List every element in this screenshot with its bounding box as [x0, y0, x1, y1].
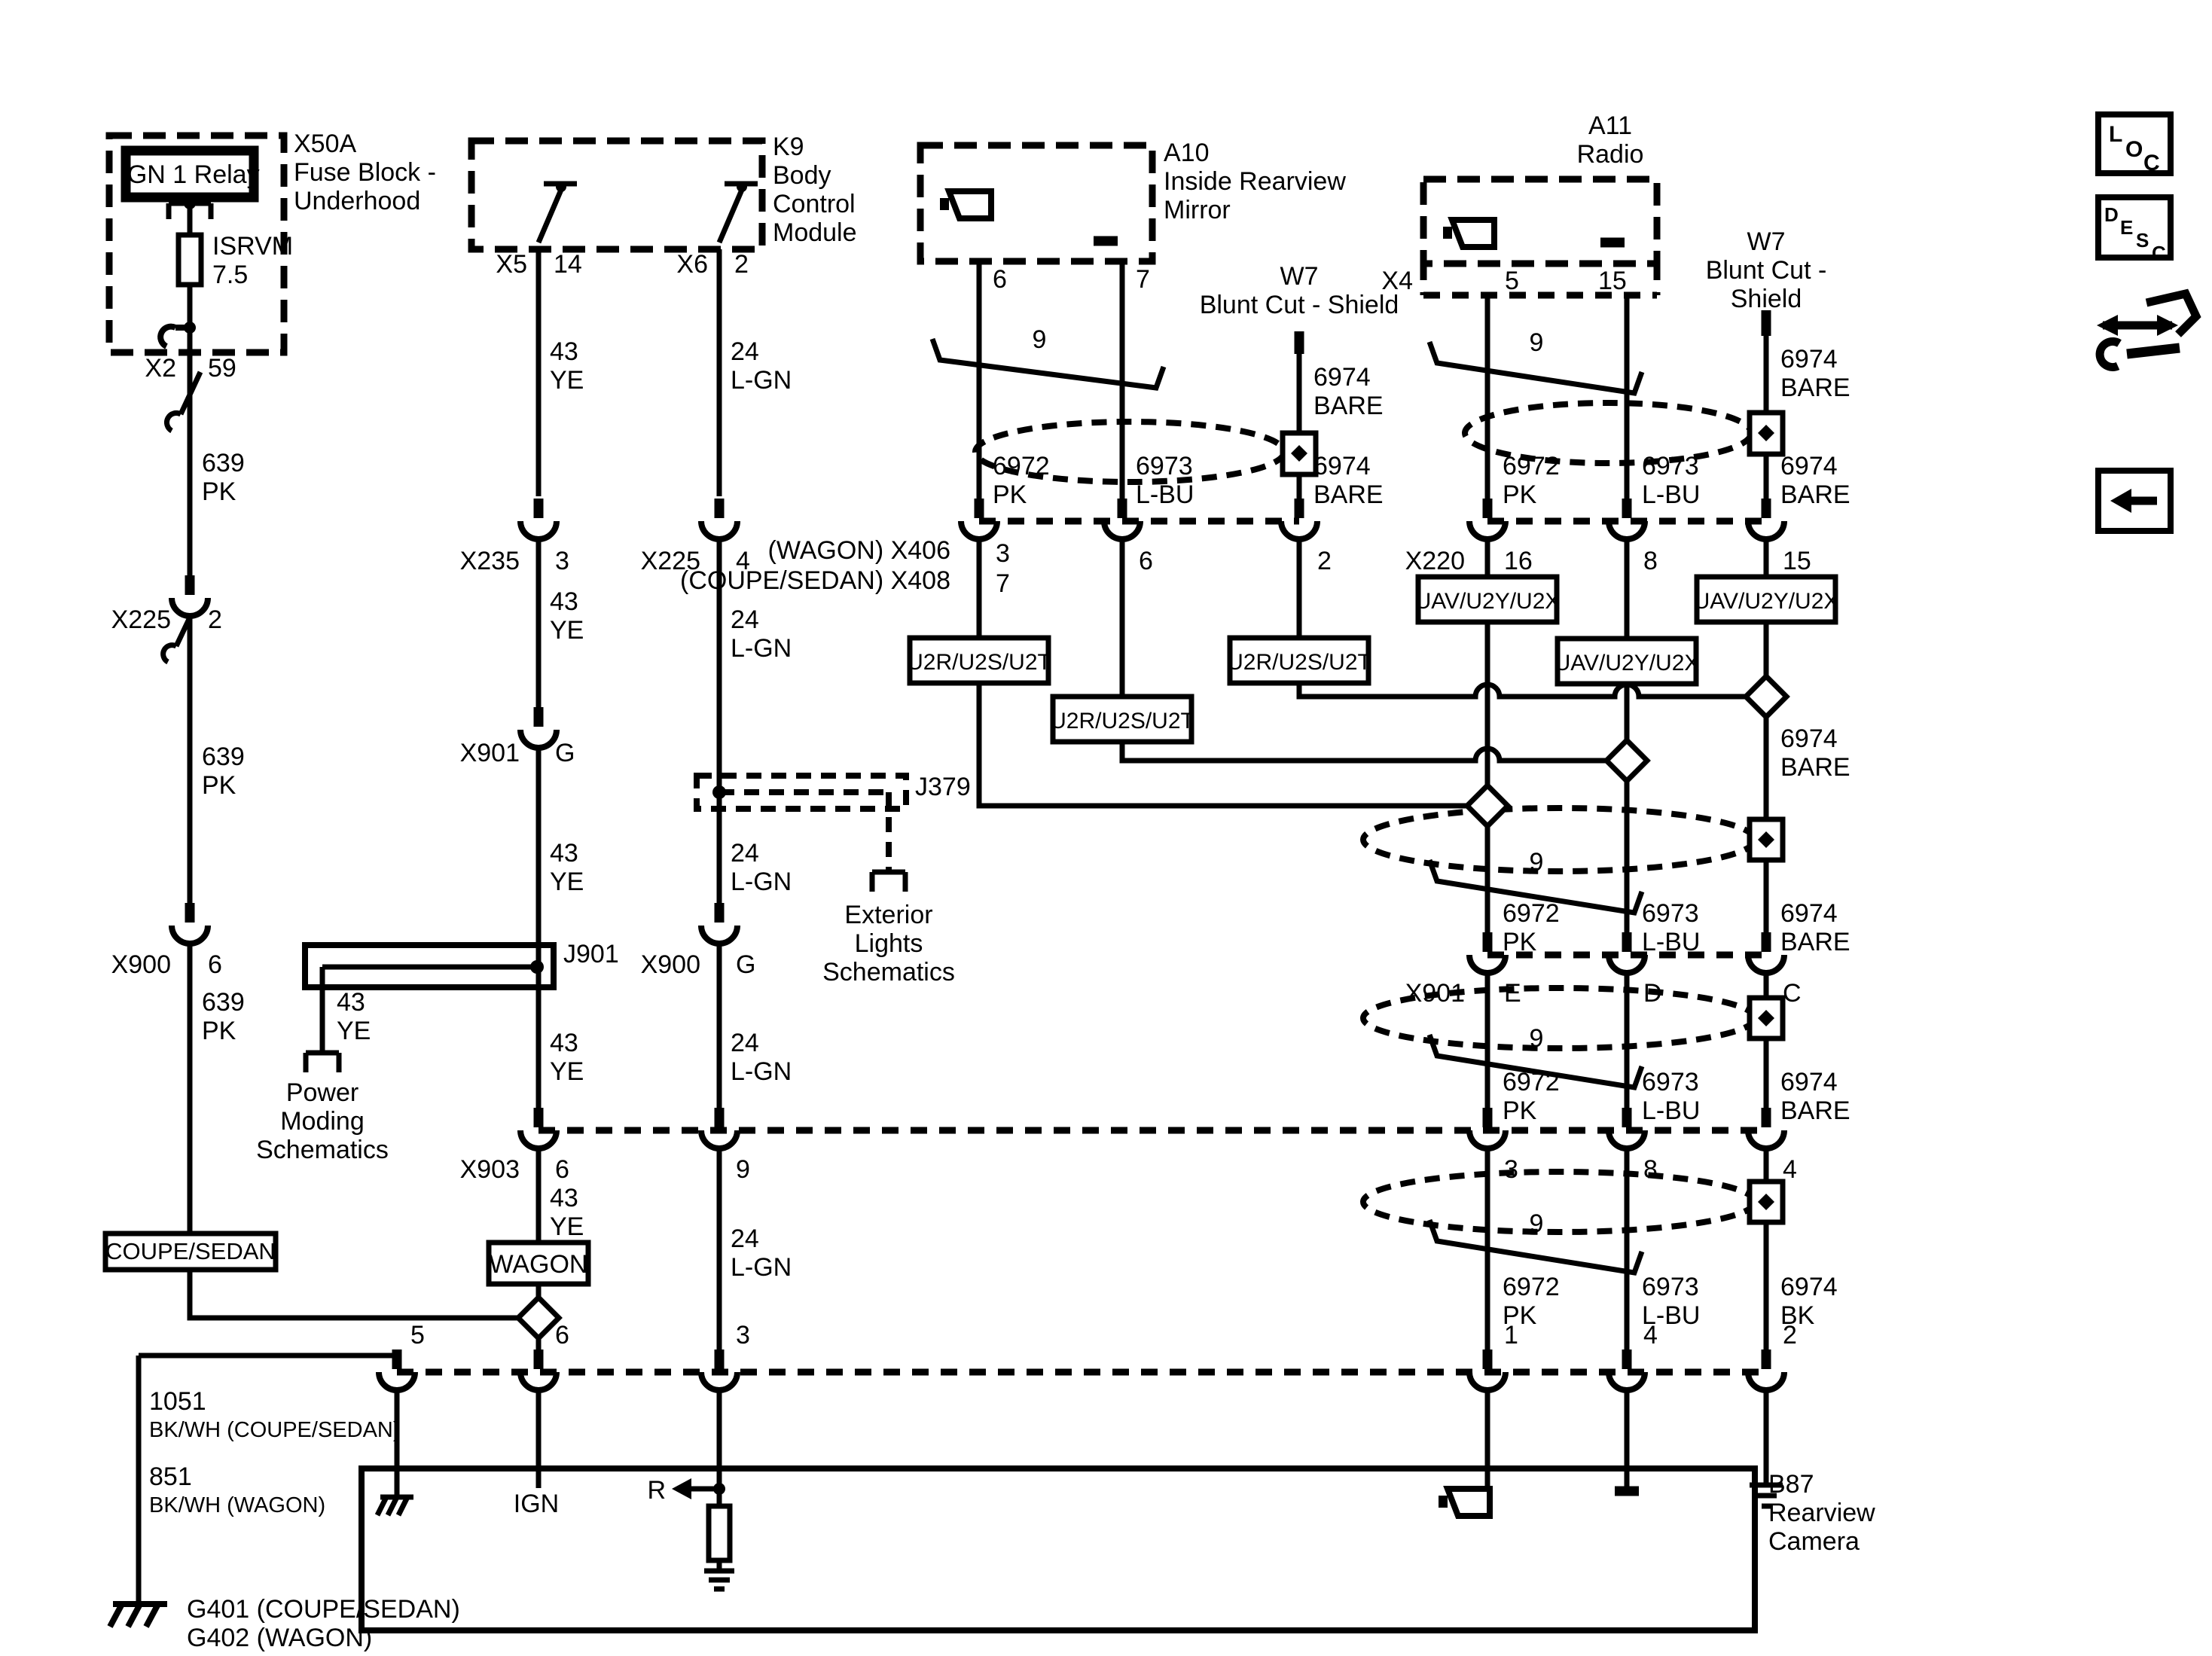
x6-pin: 2	[734, 250, 749, 279]
wire-label: 43	[550, 1184, 578, 1212]
wire-label: 6973	[1642, 1068, 1699, 1096]
camera-box	[362, 1468, 1783, 1630]
wire-label: BARE	[1313, 480, 1384, 509]
x903-pin-3: 3	[1504, 1155, 1518, 1184]
loc-letter-l: L	[2109, 122, 2122, 147]
x901-pin-c: C	[1783, 979, 1802, 1008]
wire-label: 43	[550, 1029, 578, 1057]
x900c-label: X900	[641, 950, 700, 979]
x903-pin-9: 9	[736, 1155, 750, 1184]
twist-4: 9	[1530, 1024, 1544, 1053]
wire-label: 6974	[1780, 1273, 1838, 1301]
x235-label: X235	[460, 547, 520, 575]
wire-label: YE	[550, 1057, 584, 1086]
k9-name-2: Control	[773, 190, 856, 218]
side-toolbar: L O C D E S C	[2097, 114, 2196, 531]
wire-label: 6974	[1780, 452, 1838, 480]
k9-box	[471, 141, 762, 249]
a10-id: A10	[1164, 139, 1210, 167]
desc-letter-d: D	[2104, 203, 2119, 226]
chassis-ground	[110, 1604, 167, 1627]
w7b-wire-color: BARE	[1780, 374, 1850, 402]
wire-label: 6972	[1503, 899, 1560, 928]
wire-label: 6973	[1642, 452, 1699, 480]
desc-letter-s: S	[2136, 229, 2149, 252]
b87-name-2: Camera	[1768, 1527, 1860, 1556]
camera-icon-b87	[1448, 1489, 1490, 1516]
x901b-label: X901	[460, 739, 520, 767]
x408-pin: 7	[996, 569, 1010, 598]
wire-label: 6973	[1642, 1273, 1699, 1301]
coupe-sedan-label: COUPE/SEDAN	[105, 1238, 276, 1264]
wire-label: YE	[550, 616, 584, 645]
wire-label: 43	[550, 337, 578, 366]
wire-851-color: BK/WH (WAGON)	[149, 1493, 325, 1517]
cb-hook-icon	[160, 327, 190, 346]
j379-label: J379	[915, 773, 971, 801]
bcm-switch-icons	[539, 181, 758, 242]
fuse-rating: 7.5	[212, 261, 248, 289]
b87-ign-label: IGN	[514, 1490, 559, 1518]
wire-label: BARE	[1780, 1096, 1850, 1125]
wire-label: L-BU	[1642, 480, 1700, 509]
exterior-lights-3: Schematics	[822, 958, 955, 987]
w7b-name-2: Shield	[1731, 285, 1802, 313]
x406-label: (WAGON) X406	[768, 536, 950, 565]
j901-label: J901	[563, 940, 619, 968]
a11-pin-15: 15	[1598, 267, 1627, 295]
w7a-wire-num: 6974	[1313, 363, 1371, 392]
mirror-radio-icons	[940, 191, 1625, 247]
w7b-id: W7	[1747, 227, 1786, 256]
wire-label: 24	[731, 605, 759, 634]
camera-icon-a10	[949, 191, 991, 218]
x2-label: X2	[145, 354, 176, 383]
x901-label: X901	[1405, 979, 1465, 1008]
x903-pin-6: 6	[555, 1155, 569, 1184]
a10-pin-7: 7	[1136, 265, 1150, 294]
x901-pin-e: E	[1504, 979, 1521, 1008]
wire-label: PK	[202, 477, 236, 506]
wire-label: 6972	[993, 452, 1050, 480]
cam-pin-6: 6	[555, 1321, 569, 1350]
back-button[interactable]	[2098, 471, 2171, 531]
wire-1051-color: BK/WH (COUPE/SEDAN)	[149, 1418, 401, 1442]
wire-label: YE	[550, 366, 584, 395]
wire-label: 6972	[1503, 452, 1560, 480]
loc-letter-c: C	[2143, 151, 2160, 175]
camera-icon-a11	[1452, 220, 1494, 247]
u2r-label: U2R/U2S/U2T	[1227, 650, 1371, 675]
inline-boxes	[105, 577, 1835, 1284]
exterior-lights-1: Exterior	[844, 901, 932, 929]
g402-label: G402 (WAGON)	[187, 1624, 372, 1652]
w7b-name-1: Blunt Cut -	[1706, 256, 1827, 285]
x900c-pin: G	[736, 950, 755, 979]
x235-pin: 3	[555, 547, 569, 575]
b87-id: B87	[1768, 1470, 1814, 1499]
relay-label: IGN 1 Relay	[120, 160, 259, 189]
cam-pin-1: 1	[1504, 1321, 1518, 1350]
b87-name-1: Rearview	[1768, 1499, 1875, 1527]
wire-label: 6974	[1780, 724, 1838, 753]
wire-label: YE	[337, 1017, 371, 1045]
wire-label: L-BU	[1642, 1096, 1700, 1125]
a10-pin-6: 6	[993, 265, 1007, 294]
desc-letter-c: C	[2152, 242, 2166, 264]
a11-name: Radio	[1577, 140, 1644, 169]
wire-label: PK	[1503, 1096, 1537, 1125]
reverse-arrow-icon	[672, 1478, 691, 1499]
x50a-name-2: Underhood	[294, 187, 420, 215]
x406-pin: 3	[996, 539, 1010, 568]
schematic-canvas: L O C D E S C X50A Fuse Block - Underhoo…	[0, 0, 2212, 1656]
x408-label: (COUPE/SEDAN) X408	[680, 566, 950, 595]
x220-label: X220	[1405, 547, 1465, 575]
wire-label: PK	[993, 480, 1027, 509]
wire-label: 6974	[1780, 1068, 1838, 1096]
x903-pin-8: 8	[1643, 1155, 1658, 1184]
wire-label: 639	[202, 743, 245, 771]
twist-1: 9	[1033, 325, 1047, 354]
wiring-diagram-page: L O C D E S C X50A Fuse Block - Underhoo…	[0, 0, 2212, 1656]
cam-pin-4: 4	[1643, 1321, 1658, 1350]
x220-pin-8: 8	[1643, 547, 1658, 575]
twist-2: 9	[1530, 328, 1544, 357]
wire-label: L-GN	[731, 634, 792, 663]
b87-outline	[362, 1468, 1755, 1630]
wire-label: 6974	[1313, 452, 1371, 480]
wire-label: BARE	[1780, 753, 1850, 782]
labels: X50A Fuse Block - Underhood IGN 1 Relay …	[105, 111, 1875, 1652]
wire-label: 6972	[1503, 1068, 1560, 1096]
uav-label: UAV/U2Y/U2X	[1415, 589, 1561, 614]
a11-id: A11	[1588, 111, 1632, 140]
x900a-pin: 6	[208, 950, 222, 979]
u2r-label: U2R/U2S/U2T	[1050, 709, 1194, 733]
wire-label: YE	[550, 868, 584, 896]
wire-label: 43	[550, 839, 578, 868]
wire-label: 639	[202, 988, 245, 1017]
x6-label: X6	[676, 250, 708, 279]
wire-label: 24	[731, 337, 759, 366]
wire-label: 6973	[1642, 899, 1699, 928]
cam-pin-3: 3	[736, 1321, 750, 1350]
wire-label: L-GN	[731, 366, 792, 395]
desc-letter-e: E	[2120, 216, 2133, 239]
uav-label: UAV/U2Y/U2X	[1555, 651, 1700, 676]
x5-label: X5	[496, 250, 527, 279]
uav-label: UAV/U2Y/U2X	[1694, 589, 1839, 614]
wire-label: 24	[731, 839, 759, 868]
power-moding-2: Moding	[280, 1107, 365, 1136]
ground-icon-resistor	[704, 1571, 734, 1589]
x406-pin-6: 6	[1139, 547, 1153, 575]
wire-label: 6974	[1780, 899, 1838, 928]
ground-icon-g401	[110, 1604, 167, 1627]
wire-label: L-GN	[731, 868, 792, 896]
wire-label: 24	[731, 1224, 759, 1253]
x901-pin-d: D	[1643, 979, 1662, 1008]
resistor-icon	[709, 1506, 730, 1560]
wire-label: BARE	[1780, 480, 1850, 509]
wire-label: PK	[1503, 928, 1537, 956]
wire-label: PK	[202, 1017, 236, 1045]
power-moding-3: Schematics	[256, 1136, 389, 1164]
wire-label: L-GN	[731, 1253, 792, 1282]
x903-label: X903	[460, 1155, 520, 1184]
power-moding-1: Power	[286, 1078, 358, 1107]
fuse-icon	[178, 235, 201, 285]
x901b-pin: G	[555, 739, 575, 767]
x2-pin: 59	[208, 354, 236, 383]
wire-label: 24	[731, 1029, 759, 1057]
cam-pin-5: 5	[410, 1321, 425, 1350]
wire-851: 851	[149, 1462, 192, 1491]
wire-label: L-GN	[731, 1057, 792, 1086]
offpage-bracket-exterior	[872, 872, 905, 892]
exterior-lights-2: Lights	[855, 929, 923, 958]
ground-icon-left	[377, 1497, 413, 1515]
w7a-wire-color: BARE	[1313, 392, 1384, 420]
a10-name-1: Inside Rearview	[1164, 167, 1346, 196]
twist-3: 9	[1530, 848, 1544, 877]
x900a-label: X900	[111, 950, 171, 979]
a11-pin-5: 5	[1505, 267, 1519, 295]
wagon-label: WAGON	[490, 1250, 588, 1279]
wire-label: 6973	[1136, 452, 1193, 480]
x903-pin-4: 4	[1783, 1155, 1797, 1184]
wire-label: 43	[337, 988, 365, 1017]
fuse-name: ISRVM	[212, 232, 293, 261]
x220-pin-15: 15	[1783, 547, 1811, 575]
x225a-pin: 2	[208, 605, 222, 634]
shield-ellipses	[975, 403, 1755, 1232]
k9-name-3: Module	[773, 218, 857, 247]
wire-label: YE	[550, 1212, 584, 1241]
wire-label: 43	[550, 587, 578, 616]
twist-5: 9	[1530, 1209, 1544, 1238]
wire-label: 6972	[1503, 1273, 1560, 1301]
wire-label: BARE	[1780, 928, 1850, 956]
loc-letter-o: O	[2125, 137, 2143, 162]
x50a-name-1: Fuse Block -	[294, 158, 436, 187]
u2r-label: U2R/U2S/U2T	[907, 650, 1051, 675]
offpage-bracket-power	[306, 1053, 339, 1072]
wire-label: L-BU	[1642, 928, 1700, 956]
w7a-name: Blunt Cut - Shield	[1200, 291, 1399, 319]
b87-r-label: R	[647, 1476, 666, 1505]
x225a-label: X225	[111, 605, 171, 634]
x220-pin-16: 16	[1504, 547, 1533, 575]
w7b-wire-num: 6974	[1780, 345, 1838, 374]
w7a-id: W7	[1280, 262, 1319, 291]
wire-label: L-BU	[1136, 480, 1194, 509]
k9-id: K9	[773, 133, 804, 161]
x50a-id: X50A	[294, 130, 356, 158]
cam-pin-2: 2	[1783, 1321, 1797, 1350]
g401-label: G401 (COUPE/SEDAN)	[187, 1595, 460, 1624]
x5-pin: 14	[554, 250, 582, 279]
wire-label: PK	[202, 771, 236, 800]
k9-name-1: Body	[773, 161, 831, 190]
a10-name-2: Mirror	[1164, 196, 1231, 224]
x406-pin-2: 2	[1317, 547, 1332, 575]
wire-label: 639	[202, 449, 245, 477]
wire-label: PK	[1503, 480, 1537, 509]
routing-wrench-icon[interactable]	[2097, 294, 2196, 367]
wire-1051: 1051	[149, 1387, 206, 1416]
